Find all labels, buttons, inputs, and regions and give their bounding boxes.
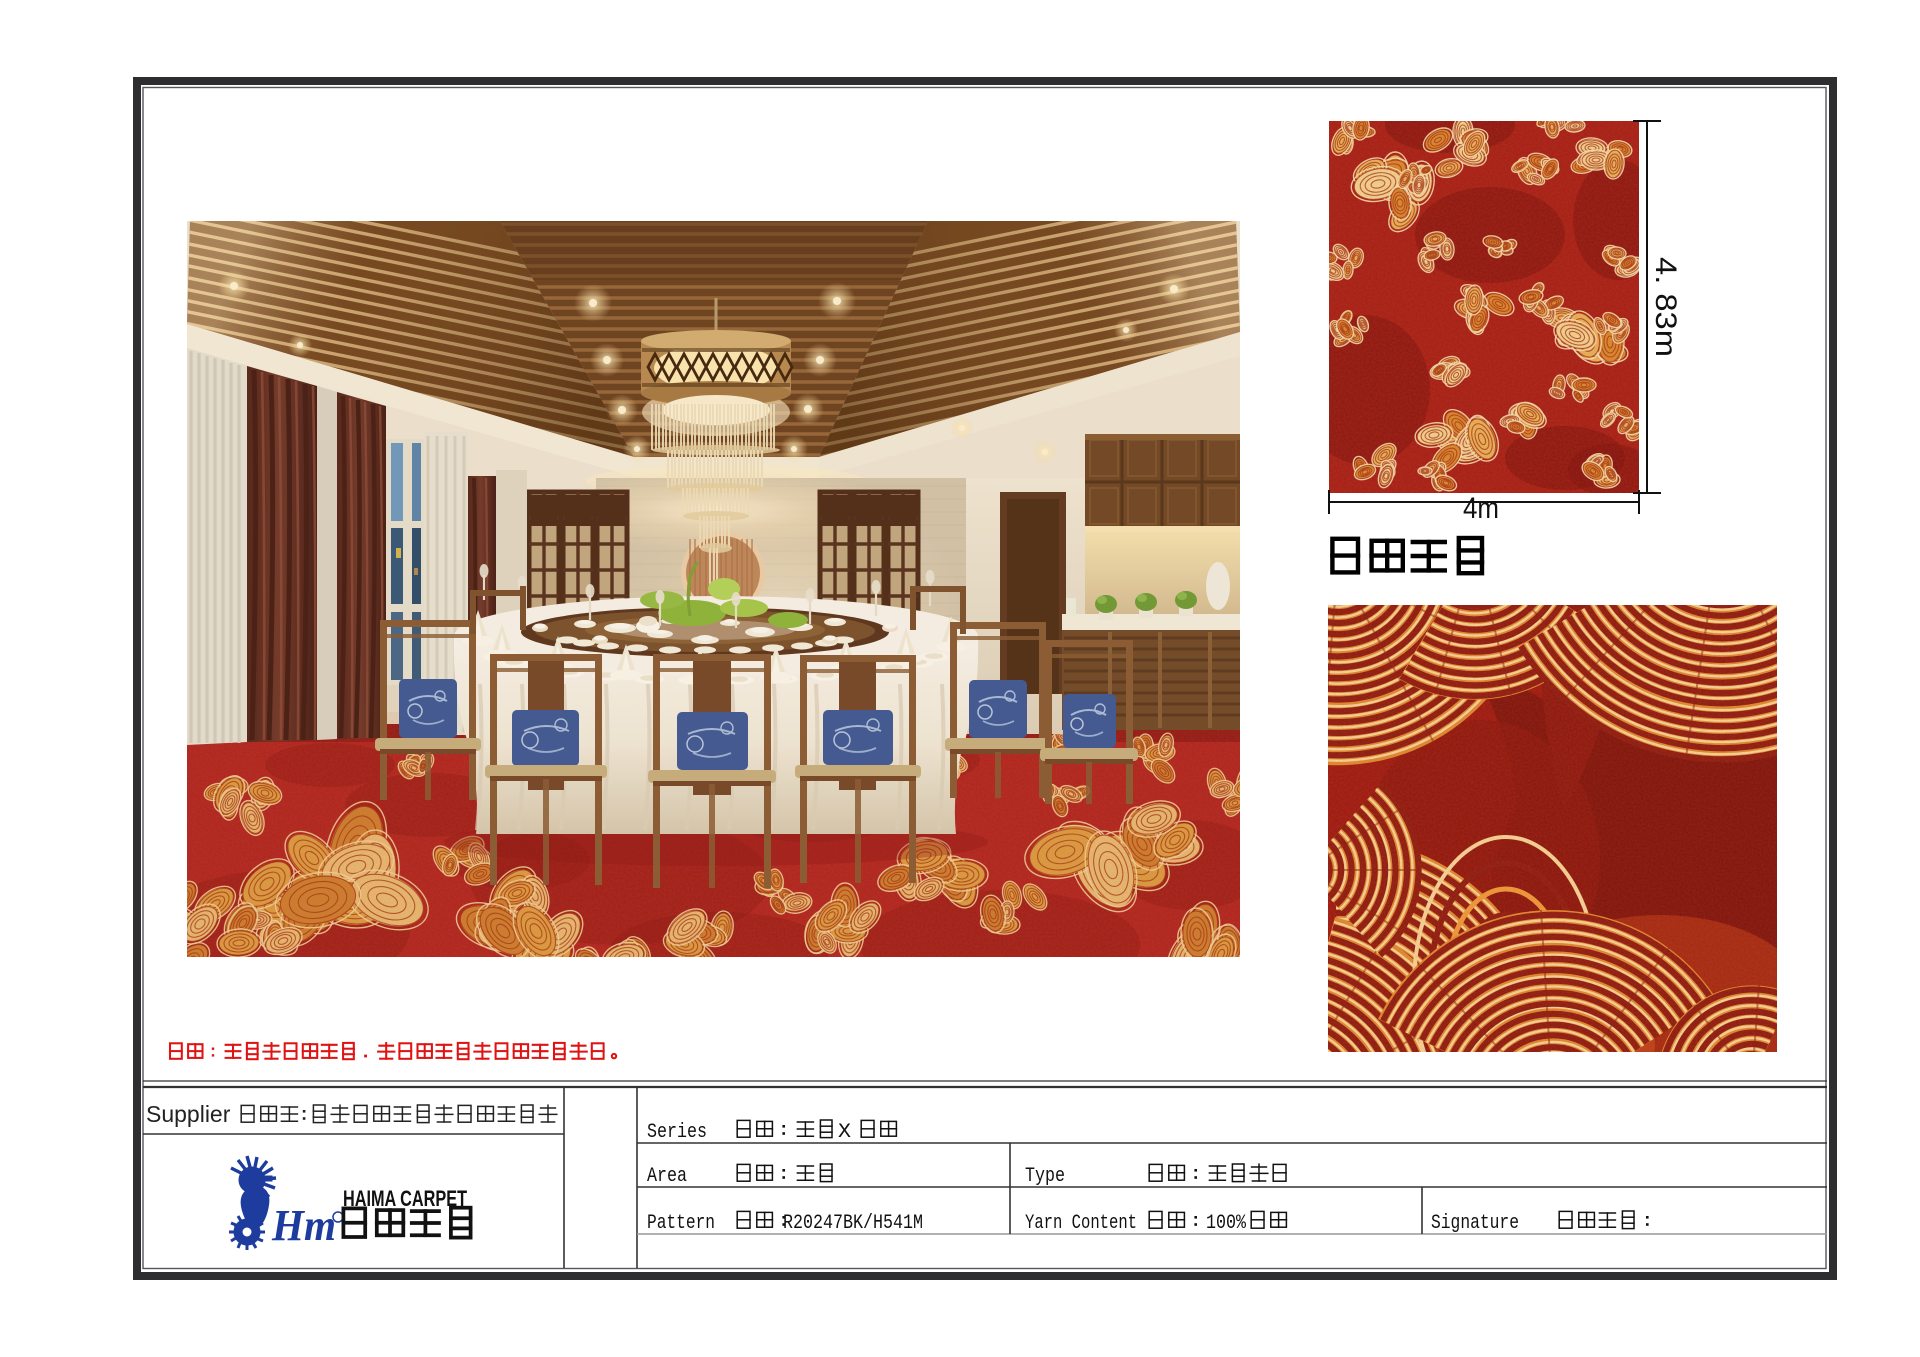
svg-text:Type: Type	[1025, 1165, 1065, 1188]
svg-text:Yarn Content: Yarn Content	[1025, 1212, 1137, 1235]
svg-text:4. 83m: 4. 83m	[1649, 257, 1682, 357]
svg-text:4m: 4m	[1463, 492, 1499, 525]
svg-text:Series: Series	[647, 1121, 707, 1144]
svg-text:100%: 100%	[1206, 1212, 1247, 1235]
svg-text:Pattern: Pattern	[647, 1212, 715, 1235]
svg-text:Supplier: Supplier	[146, 1101, 231, 1127]
svg-text:R20247BK/H541M: R20247BK/H541M	[783, 1212, 923, 1235]
svg-text:Hm: Hm	[271, 1201, 336, 1250]
svg-text:Signature: Signature	[1431, 1212, 1519, 1235]
svg-text:X: X	[838, 1121, 851, 1144]
svg-text:Area: Area	[647, 1165, 687, 1188]
